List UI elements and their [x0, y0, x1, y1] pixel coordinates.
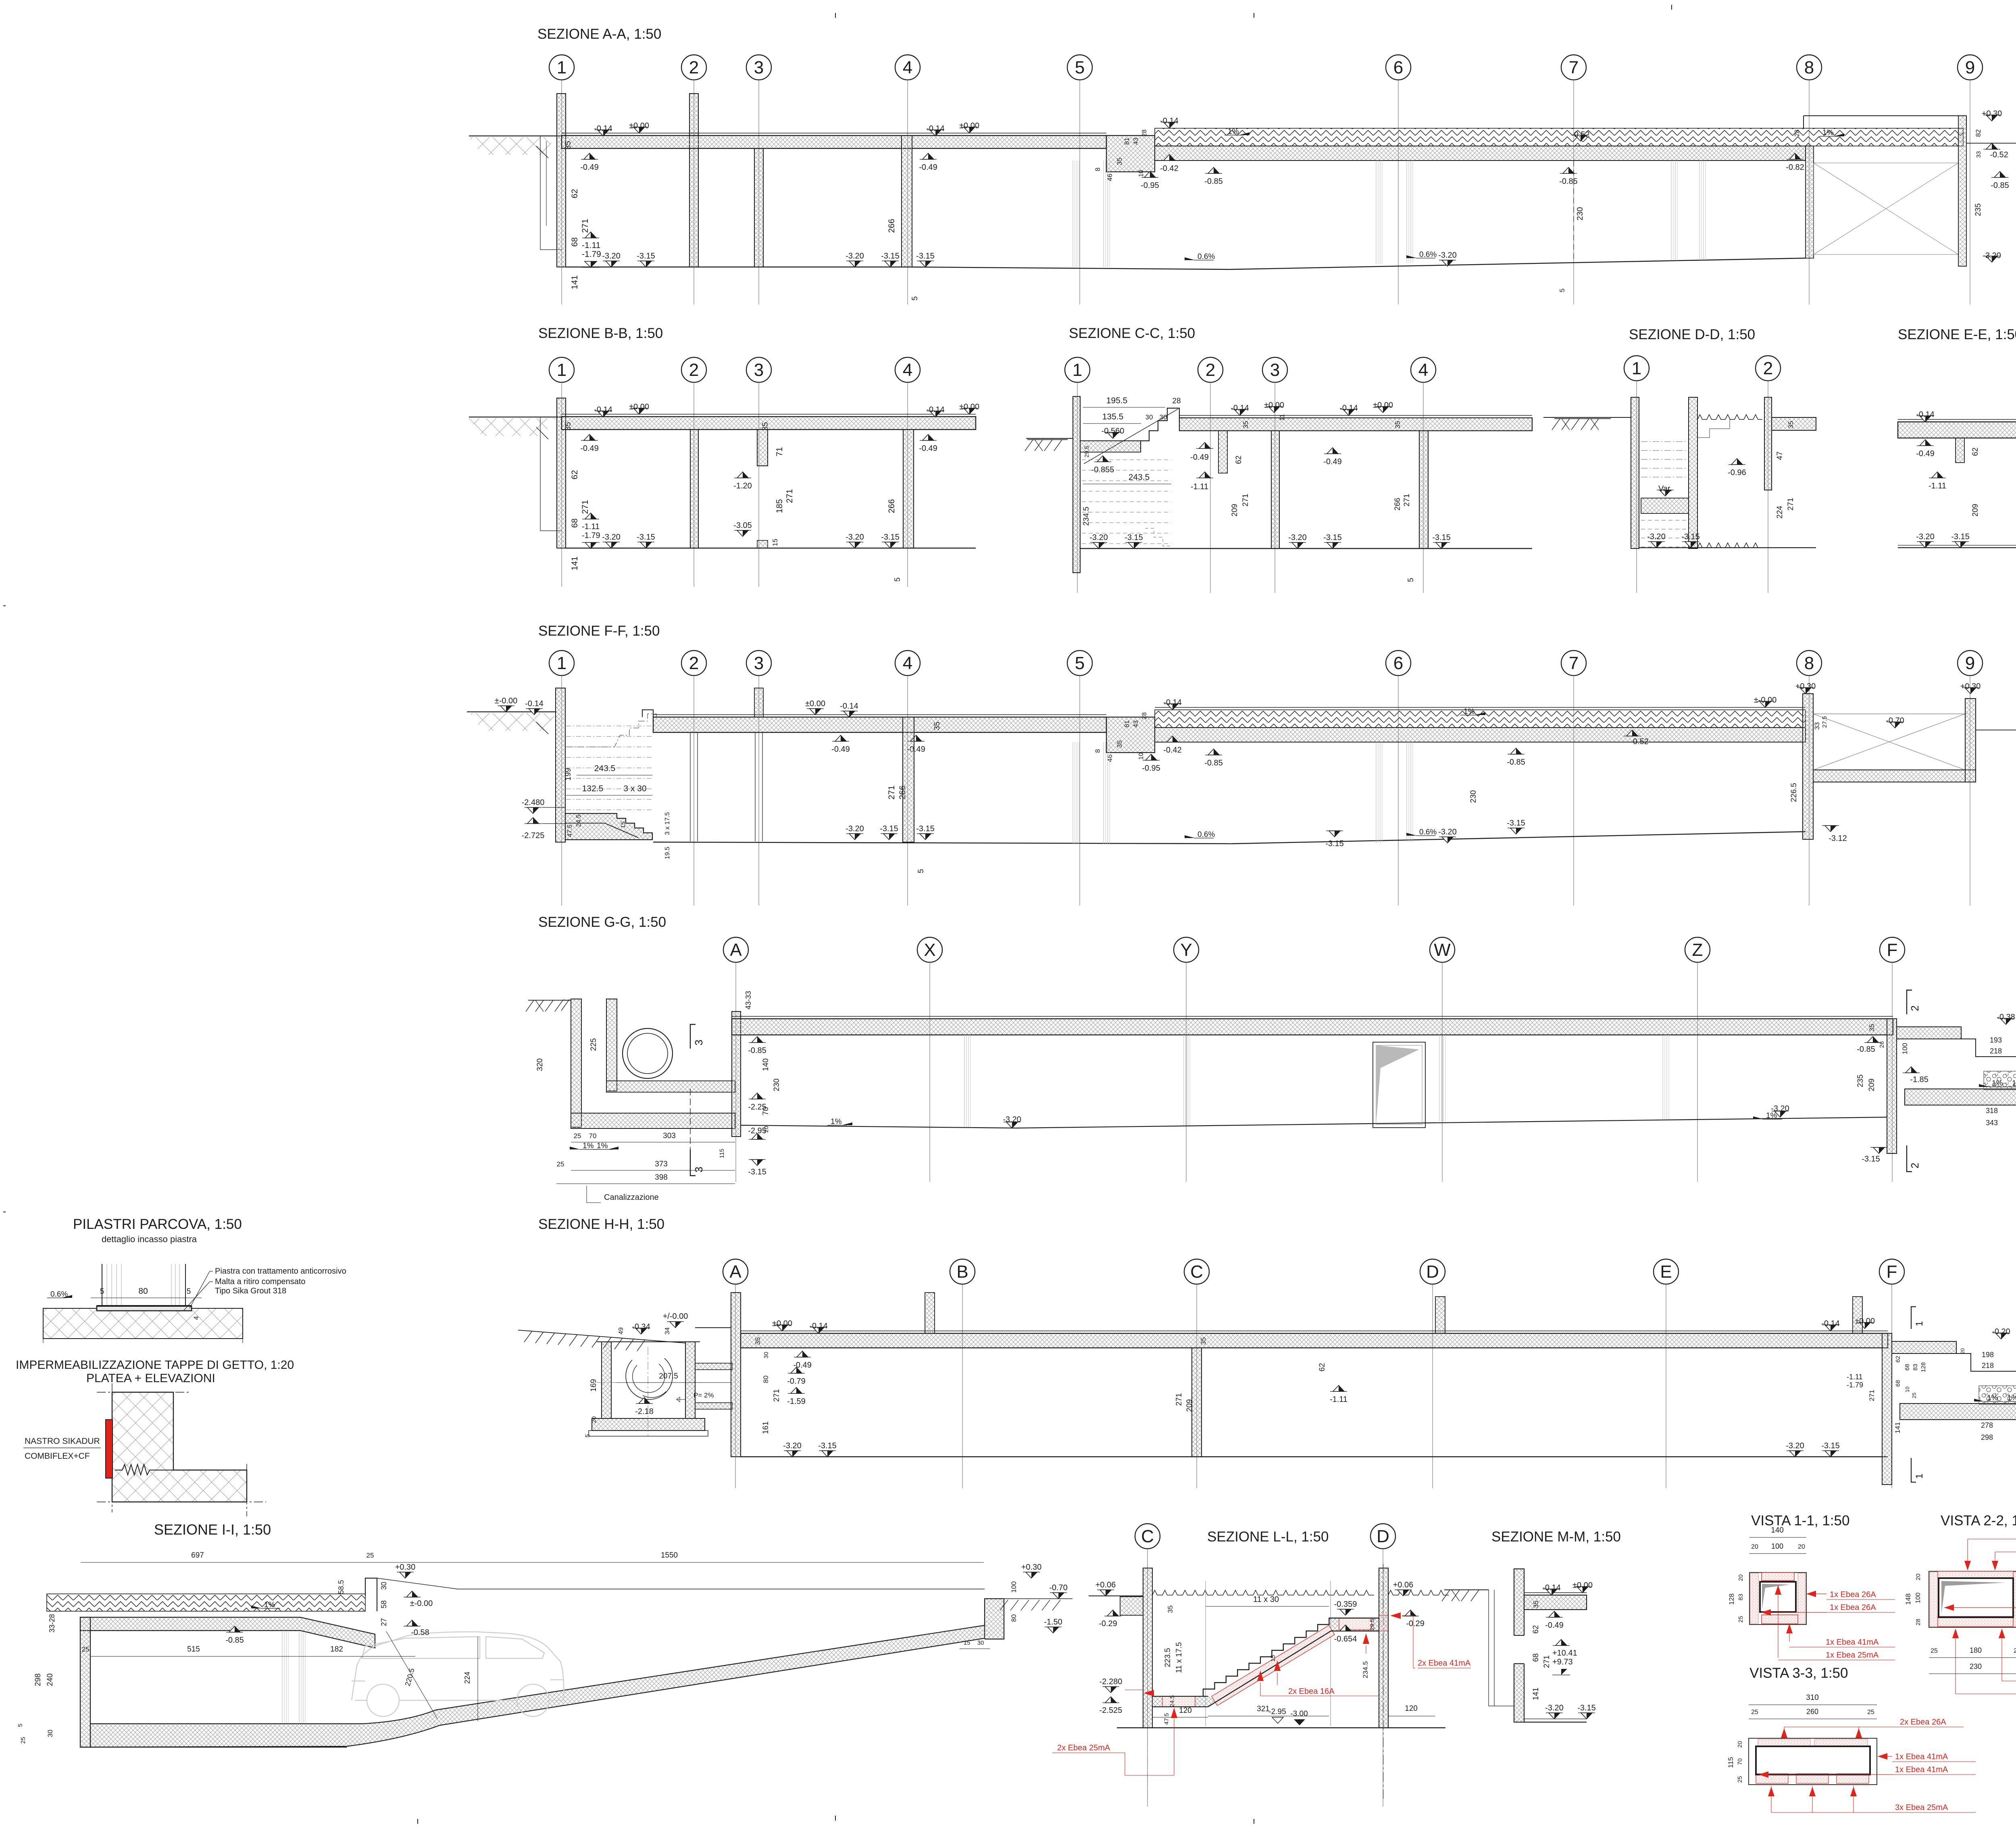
svg-text:10: 10	[1138, 170, 1145, 177]
svg-text:-1.85: -1.85	[1910, 1075, 1929, 1084]
svg-text:1x Ebea 41mA: 1x Ebea 41mA	[1895, 1752, 1948, 1761]
svg-text:F: F	[1887, 1262, 1897, 1282]
svg-text:-1.11: -1.11	[1191, 482, 1208, 491]
svg-text:15: 15	[620, 822, 627, 828]
svg-text:8: 8	[1804, 58, 1814, 77]
svg-text:-0.49: -0.49	[1916, 449, 1935, 458]
svg-text:-0.14: -0.14	[594, 405, 612, 414]
svg-text:VISTA 1-1, 1:50: VISTA 1-1, 1:50	[1751, 1513, 1850, 1529]
svg-text:-0.85: -0.85	[1507, 758, 1525, 767]
svg-text:373: 373	[655, 1160, 668, 1168]
svg-text:7: 7	[1569, 58, 1579, 77]
svg-text:193: 193	[1990, 1036, 2002, 1044]
svg-text:-0.70: -0.70	[1049, 1583, 1068, 1592]
svg-text:266: 266	[1393, 498, 1402, 511]
svg-text:33-28: 33-28	[48, 1614, 56, 1633]
svg-text:207.5: 207.5	[659, 1372, 678, 1381]
svg-text:26: 26	[1879, 1041, 1885, 1048]
svg-text:25: 25	[20, 1737, 27, 1744]
svg-text:-3.20: -3.20	[1983, 251, 2001, 260]
svg-text:1%: 1%	[1464, 707, 1475, 716]
svg-text:-3.15: -3.15	[818, 1441, 837, 1450]
svg-text:223.5: 223.5	[1164, 1648, 1172, 1667]
svg-text:SEZIONE A-A, 1:50: SEZIONE A-A, 1:50	[537, 26, 661, 42]
svg-text:±0.00: ±0.00	[772, 1319, 792, 1328]
svg-text:-0.14: -0.14	[926, 124, 945, 133]
svg-text:-0.49: -0.49	[1190, 453, 1209, 462]
svg-text:-3.20: -3.20	[1089, 533, 1108, 542]
svg-text:1%: 1%	[1992, 1079, 2003, 1088]
svg-text:100: 100	[1771, 1542, 1783, 1550]
svg-text:±0.00: ±0.00	[959, 403, 979, 411]
svg-text:4: 4	[903, 58, 912, 77]
svg-text:COMBIFLEX+CF: COMBIFLEX+CF	[25, 1452, 90, 1461]
svg-text:-1.50: -1.50	[1044, 1618, 1062, 1627]
svg-text:1%: 1%	[1822, 129, 1834, 137]
svg-text:100: 100	[1010, 1581, 1018, 1593]
svg-text:43: 43	[1133, 138, 1139, 145]
svg-text:Tipo Sika Grout 318: Tipo Sika Grout 318	[215, 1287, 286, 1295]
svg-text:-1.11: -1.11	[1330, 1395, 1347, 1404]
svg-text:PILASTRI PARCOVA, 1:50: PILASTRI PARCOVA, 1:50	[73, 1216, 242, 1232]
svg-text:-0.85: -0.85	[1857, 1045, 1875, 1054]
svg-text:-1.11: -1.11	[1929, 482, 1946, 490]
svg-text:20: 20	[591, 1416, 598, 1423]
svg-text:20: 20	[1737, 1741, 1743, 1748]
svg-text:33: 33	[1975, 151, 1982, 158]
svg-text:-0.49: -0.49	[580, 444, 599, 453]
svg-text:83: 83	[1912, 1364, 1919, 1371]
svg-text:70: 70	[762, 1107, 770, 1115]
svg-text:-3.12: -3.12	[1829, 834, 1847, 843]
svg-text:-0.96: -0.96	[1728, 468, 1746, 477]
svg-text:1%: 1%	[831, 1118, 842, 1126]
svg-text:25: 25	[82, 1645, 90, 1653]
svg-text:28: 28	[1794, 129, 1801, 137]
svg-text:SEZIONE G-G, 1:50: SEZIONE G-G, 1:50	[538, 914, 666, 930]
svg-text:62: 62	[570, 189, 579, 198]
svg-text:±0.00: ±0.00	[1373, 401, 1393, 410]
svg-text:-1.11: -1.11	[1847, 1373, 1863, 1381]
svg-text:235: 235	[1974, 203, 1983, 216]
svg-text:A: A	[729, 1262, 741, 1282]
svg-text:7: 7	[1569, 653, 1579, 673]
svg-text:-3.15: -3.15	[637, 252, 655, 261]
svg-text:SEZIONE E-E, 1:50: SEZIONE E-E, 1:50	[1898, 327, 2016, 342]
svg-text:E: E	[1660, 1262, 1672, 1282]
svg-text:-0.359: -0.359	[1334, 1600, 1357, 1609]
svg-text:-3.15: -3.15	[1125, 533, 1143, 542]
svg-text:-3.15: -3.15	[1323, 533, 1342, 542]
svg-text:43-33: 43-33	[744, 991, 752, 1009]
svg-text:4: 4	[192, 1316, 200, 1320]
svg-text:1550: 1550	[661, 1551, 678, 1560]
svg-text:271: 271	[1241, 494, 1250, 507]
svg-text:28: 28	[1915, 1619, 1922, 1626]
svg-text:343: 343	[1986, 1119, 1998, 1127]
svg-text:-1.79: -1.79	[582, 531, 600, 540]
svg-text:697: 697	[191, 1551, 204, 1560]
svg-text:5: 5	[1407, 578, 1415, 582]
svg-text:25: 25	[1737, 1776, 1743, 1783]
svg-text:226.5: 226.5	[1790, 783, 1798, 802]
svg-text:3 x 30: 3 x 30	[623, 784, 646, 793]
svg-text:+/-0.00: +/-0.00	[663, 1312, 688, 1321]
svg-text:2: 2	[1909, 1163, 1921, 1168]
svg-text:1x Ebea 26A: 1x Ebea 26A	[1830, 1603, 1876, 1612]
svg-text:B: B	[956, 1262, 968, 1282]
svg-text:243.5: 243.5	[1129, 473, 1150, 482]
svg-text:-0.85: -0.85	[748, 1046, 766, 1055]
svg-text:9: 9	[1965, 58, 1975, 77]
svg-text:141: 141	[570, 556, 579, 570]
svg-text:30: 30	[1145, 413, 1153, 421]
svg-text:27: 27	[380, 1618, 388, 1626]
svg-text:1: 1	[1632, 359, 1641, 378]
svg-text:209: 209	[1971, 504, 1980, 517]
svg-text:-0.29: -0.29	[1406, 1619, 1425, 1628]
svg-text:35: 35	[1116, 740, 1123, 748]
svg-text:35: 35	[1166, 1606, 1174, 1613]
svg-text:71: 71	[775, 447, 784, 456]
svg-text:80: 80	[138, 1287, 148, 1296]
svg-text:20: 20	[763, 1126, 770, 1133]
svg-text:2: 2	[689, 653, 699, 673]
svg-text:5: 5	[100, 1287, 104, 1296]
svg-text:IMPERMEABILIZZAZIONE TAPPE DI: IMPERMEABILIZZAZIONE TAPPE DI GETTO, 1:2…	[16, 1358, 294, 1372]
svg-text:2: 2	[1763, 359, 1773, 378]
svg-text:83: 83	[1737, 1594, 1744, 1601]
svg-text:-0.52: -0.52	[1990, 150, 2008, 159]
svg-text:-0.34: -0.34	[632, 1322, 650, 1331]
svg-text:1: 1	[1073, 360, 1082, 380]
svg-text:-0.49: -0.49	[580, 163, 599, 172]
svg-text:W: W	[1434, 940, 1451, 960]
svg-text:260: 260	[1806, 1708, 1818, 1716]
svg-text:SEZIONE I-I, 1:50: SEZIONE I-I, 1:50	[154, 1521, 271, 1538]
svg-text:3: 3	[1270, 360, 1280, 380]
svg-text:148: 148	[1904, 1593, 1912, 1605]
svg-text:271: 271	[581, 500, 590, 514]
svg-text:135.5: 135.5	[1102, 412, 1124, 421]
svg-text:1%: 1%	[264, 1601, 275, 1609]
svg-text:11: 11	[1279, 414, 1286, 421]
svg-text:140: 140	[762, 1058, 770, 1071]
svg-text:-3.15: -3.15	[880, 824, 898, 833]
svg-text:±0.00: ±0.00	[629, 121, 649, 130]
svg-text:-3.15: -3.15	[1681, 532, 1700, 541]
svg-text:141: 141	[1532, 1687, 1540, 1700]
svg-text:2: 2	[689, 360, 699, 380]
svg-text:-1.79: -1.79	[582, 250, 601, 259]
svg-text:35: 35	[1116, 158, 1123, 165]
svg-text:10: 10	[1138, 753, 1145, 760]
svg-text:-0.85: -0.85	[1204, 759, 1223, 767]
svg-text:Z: Z	[1692, 940, 1703, 960]
svg-text:±-0.00: ±-0.00	[1754, 696, 1777, 705]
svg-text:5: 5	[1075, 58, 1085, 77]
svg-text:2: 2	[689, 58, 699, 77]
svg-text:-0.58: -0.58	[411, 1628, 429, 1637]
svg-text:11 x 30: 11 x 30	[1253, 1595, 1279, 1604]
svg-text:3: 3	[693, 1040, 705, 1045]
svg-text:169: 169	[589, 1379, 598, 1392]
svg-text:35: 35	[1787, 421, 1795, 429]
svg-text:-0.49: -0.49	[1323, 457, 1342, 466]
svg-text:-1.20: -1.20	[733, 482, 752, 490]
svg-text:271: 271	[581, 219, 590, 233]
svg-text:P= 2%: P= 2%	[694, 1391, 714, 1399]
svg-text:1%: 1%	[1987, 1394, 1998, 1402]
svg-text:209: 209	[1231, 504, 1239, 517]
svg-text:-0.14: -0.14	[1231, 404, 1249, 413]
svg-text:8: 8	[1094, 167, 1102, 171]
svg-text:24.5: 24.5	[575, 814, 582, 827]
svg-text:132.5: 132.5	[582, 784, 604, 793]
svg-text:5: 5	[17, 1724, 24, 1727]
svg-text:240: 240	[46, 1673, 54, 1686]
svg-text:-3.05: -3.05	[733, 521, 752, 530]
svg-text:30: 30	[977, 1639, 984, 1646]
svg-text:3: 3	[754, 653, 764, 673]
svg-text:-3.00: -3.00	[1290, 1710, 1308, 1718]
svg-text:0.6%: 0.6%	[1198, 252, 1215, 261]
svg-text:128: 128	[1728, 1593, 1735, 1605]
svg-text:271: 271	[887, 785, 896, 799]
svg-text:25: 25	[574, 1132, 581, 1140]
svg-text:-0.49: -0.49	[831, 745, 850, 754]
svg-text:1%: 1%	[2007, 1394, 2016, 1402]
svg-text:X: X	[924, 940, 935, 960]
svg-text:182: 182	[330, 1645, 343, 1654]
svg-text:20: 20	[1737, 1575, 1744, 1581]
svg-text:218: 218	[1982, 1362, 1994, 1370]
svg-text:-0.14: -0.14	[926, 405, 945, 414]
svg-text:2x Ebea 25mA: 2x Ebea 25mA	[1057, 1743, 1110, 1752]
svg-text:35: 35	[933, 722, 941, 730]
svg-text:+0.30: +0.30	[1795, 682, 1816, 691]
svg-text:298: 298	[34, 1673, 42, 1686]
svg-text:243.5: 243.5	[594, 764, 616, 773]
svg-text:27.5: 27.5	[1821, 716, 1828, 728]
svg-text:±0.00: ±0.00	[959, 121, 979, 130]
svg-text:25: 25	[1751, 1709, 1758, 1716]
svg-text:35: 35	[1200, 1337, 1207, 1345]
svg-text:20: 20	[1915, 1574, 1922, 1581]
svg-text:49: 49	[618, 1327, 625, 1335]
svg-text:1x Ebea 25mA: 1x Ebea 25mA	[1826, 1651, 1879, 1660]
svg-text:185: 185	[775, 499, 784, 513]
svg-text:-0.42: -0.42	[1160, 164, 1179, 173]
svg-text:-0.20: -0.20	[1992, 1327, 2010, 1336]
svg-text:195.5: 195.5	[1106, 396, 1128, 405]
svg-text:271: 271	[773, 1389, 781, 1402]
svg-text:-3.20: -3.20	[1771, 1104, 1789, 1113]
svg-text:-3.20: -3.20	[602, 252, 621, 261]
svg-text:-3.20: -3.20	[846, 533, 864, 542]
svg-text:SEZIONE C-C, 1:50: SEZIONE C-C, 1:50	[1069, 325, 1195, 341]
svg-text:43: 43	[1133, 720, 1139, 728]
svg-text:218: 218	[1990, 1047, 2002, 1055]
svg-text:5: 5	[187, 1287, 191, 1296]
svg-text:2: 2	[1909, 1005, 1921, 1011]
svg-text:303: 303	[663, 1132, 676, 1140]
svg-text:209: 209	[1868, 1078, 1876, 1091]
svg-text:-0.85: -0.85	[225, 1636, 244, 1645]
svg-text:68: 68	[1895, 1380, 1901, 1387]
svg-text:5: 5	[1558, 288, 1566, 292]
svg-text:266: 266	[887, 499, 896, 513]
svg-text:-0.38: -0.38	[1997, 1013, 2015, 1022]
svg-text:5: 5	[893, 578, 902, 582]
svg-text:58.5: 58.5	[337, 1580, 345, 1594]
svg-text:-0.52: -0.52	[1571, 130, 1590, 139]
svg-text:209: 209	[1185, 1399, 1194, 1412]
svg-text:1x Ebea 26A: 1x Ebea 26A	[1830, 1590, 1876, 1599]
svg-text:+0.06: +0.06	[1095, 1581, 1116, 1589]
svg-text:D: D	[1377, 1527, 1389, 1546]
svg-text:-3.20: -3.20	[846, 824, 864, 833]
svg-text:62: 62	[1235, 455, 1243, 464]
svg-text:115: 115	[719, 1149, 725, 1158]
svg-text:30: 30	[46, 1730, 54, 1737]
svg-text:+0.30: +0.30	[395, 1563, 416, 1572]
svg-text:82: 82	[1974, 129, 1982, 137]
svg-text:25: 25	[2014, 1648, 2016, 1654]
svg-text:30: 30	[763, 1352, 770, 1359]
svg-text:-3.15: -3.15	[1577, 1704, 1596, 1712]
svg-text:35: 35	[1242, 421, 1250, 429]
svg-text:±-0.00: ±-0.00	[495, 697, 518, 705]
svg-text:15: 15	[1270, 1655, 1277, 1662]
svg-text:-3.20: -3.20	[1288, 533, 1307, 542]
svg-text:-0.95: -0.95	[1142, 764, 1160, 773]
svg-text:25: 25	[557, 1160, 564, 1168]
svg-text:±0.00: ±0.00	[629, 403, 649, 411]
svg-text:-3.20: -3.20	[846, 252, 864, 261]
svg-text:199: 199	[564, 768, 573, 781]
svg-text:-0.14: -0.14	[840, 702, 858, 711]
svg-text:-3.15: -3.15	[1432, 533, 1451, 542]
svg-text:25: 25	[367, 1552, 374, 1559]
svg-text:-3.20: -3.20	[1916, 532, 1935, 541]
svg-text:5: 5	[1075, 653, 1085, 673]
svg-text:-3.15: -3.15	[1325, 839, 1344, 848]
svg-text:2x Ebea 26A: 2x Ebea 26A	[1900, 1718, 1946, 1727]
svg-text:-0.14: -0.14	[1542, 1583, 1561, 1592]
svg-text:1%: 1%	[2012, 1079, 2016, 1088]
svg-text:-3.15: -3.15	[1821, 1441, 1840, 1450]
svg-text:C: C	[1141, 1527, 1154, 1546]
svg-text:-3.20: -3.20	[1438, 251, 1457, 260]
svg-text:3: 3	[693, 1167, 705, 1172]
svg-text:35: 35	[761, 422, 770, 430]
svg-text:A: A	[730, 940, 742, 960]
svg-text:-0.654: -0.654	[1334, 1635, 1357, 1643]
svg-text:-3.15: -3.15	[881, 252, 900, 261]
svg-text:-0.82: -0.82	[1786, 163, 1804, 172]
svg-text:100: 100	[1915, 1593, 1922, 1604]
svg-text:-3.15: -3.15	[748, 1168, 766, 1176]
svg-text:1x Ebea 41mA: 1x Ebea 41mA	[1895, 1765, 1948, 1774]
svg-text:±0.00: ±0.00	[1572, 1581, 1593, 1590]
svg-text:-3.20: -3.20	[1545, 1704, 1564, 1712]
svg-text:68: 68	[1532, 1653, 1540, 1662]
svg-text:Canalizzazione: Canalizzazione	[604, 1193, 659, 1202]
svg-text:-2.18: -2.18	[635, 1407, 654, 1416]
svg-text:±0.00: ±0.00	[1264, 401, 1284, 410]
svg-text:+0.30: +0.30	[1960, 682, 1981, 691]
svg-text:398: 398	[655, 1173, 668, 1182]
svg-text:224: 224	[463, 1672, 471, 1684]
svg-text:4: 4	[1418, 360, 1428, 380]
svg-text:6: 6	[1393, 653, 1403, 673]
svg-text:3 x 17.5: 3 x 17.5	[664, 812, 671, 835]
svg-text:70: 70	[589, 1132, 597, 1140]
svg-text:-0.49: -0.49	[1545, 1621, 1564, 1630]
svg-text:28: 28	[1172, 397, 1181, 405]
svg-text:4: 4	[903, 653, 912, 673]
svg-text:-0.14: -0.14	[1821, 1319, 1840, 1328]
svg-text:-0.95: -0.95	[1141, 181, 1159, 190]
svg-text:230: 230	[1576, 207, 1585, 220]
svg-text:47.5: 47.5	[1163, 1713, 1170, 1725]
svg-text:-3.20: -3.20	[1003, 1115, 1021, 1124]
svg-text:-1.59: -1.59	[787, 1397, 806, 1406]
svg-text:-3.15: -3.15	[1507, 819, 1525, 828]
svg-text:+0.30: +0.30	[1982, 109, 2002, 118]
svg-text:-3.20: -3.20	[1438, 828, 1457, 836]
svg-text:180: 180	[1970, 1646, 1982, 1654]
svg-text:-0.14: -0.14	[1163, 698, 1182, 707]
svg-text:271: 271	[1175, 1393, 1183, 1406]
svg-text:29.5: 29.5	[1083, 446, 1090, 457]
svg-text:224: 224	[1776, 506, 1784, 519]
svg-text:-3.15: -3.15	[916, 252, 935, 261]
svg-text:-0.14: -0.14	[525, 699, 544, 708]
svg-text:+9.73: +9.73	[1552, 1658, 1573, 1666]
svg-text:-3.20: -3.20	[1647, 532, 1666, 541]
svg-text:81: 81	[1124, 720, 1131, 728]
svg-text:PLATEA + ELEVAZIONI: PLATEA + ELEVAZIONI	[86, 1372, 215, 1385]
svg-text:234.5: 234.5	[1082, 507, 1091, 526]
svg-text:58: 58	[380, 1600, 388, 1608]
svg-text:-3.20: -3.20	[783, 1441, 802, 1450]
svg-text:25: 25	[1867, 1709, 1874, 1716]
svg-text:1: 1	[557, 58, 566, 77]
svg-text:62: 62	[1971, 447, 1980, 456]
svg-text:46: 46	[1106, 174, 1114, 181]
svg-text:271: 271	[1787, 498, 1795, 511]
svg-text:120: 120	[1405, 1704, 1418, 1713]
svg-text:515: 515	[187, 1645, 200, 1654]
svg-text:+10.41: +10.41	[1552, 1649, 1577, 1658]
svg-text:15: 15	[964, 1639, 971, 1646]
svg-text:1: 1	[557, 653, 566, 673]
svg-text:1: 1	[1914, 1473, 1925, 1479]
svg-text:30: 30	[1160, 413, 1167, 421]
svg-text:5: 5	[584, 1434, 591, 1437]
svg-text:19.5: 19.5	[664, 847, 671, 859]
svg-text:SEZIONE H-H, 1:50: SEZIONE H-H, 1:50	[538, 1216, 664, 1232]
svg-text:120: 120	[1179, 1706, 1192, 1715]
svg-text:-0.85: -0.85	[1991, 181, 2009, 190]
svg-text:33: 33	[1813, 722, 1821, 730]
svg-text:100: 100	[1901, 1043, 1909, 1054]
svg-text:9: 9	[1965, 653, 1975, 673]
svg-text:-0.855: -0.855	[1091, 465, 1114, 474]
svg-text:-3.20: -3.20	[602, 533, 621, 542]
